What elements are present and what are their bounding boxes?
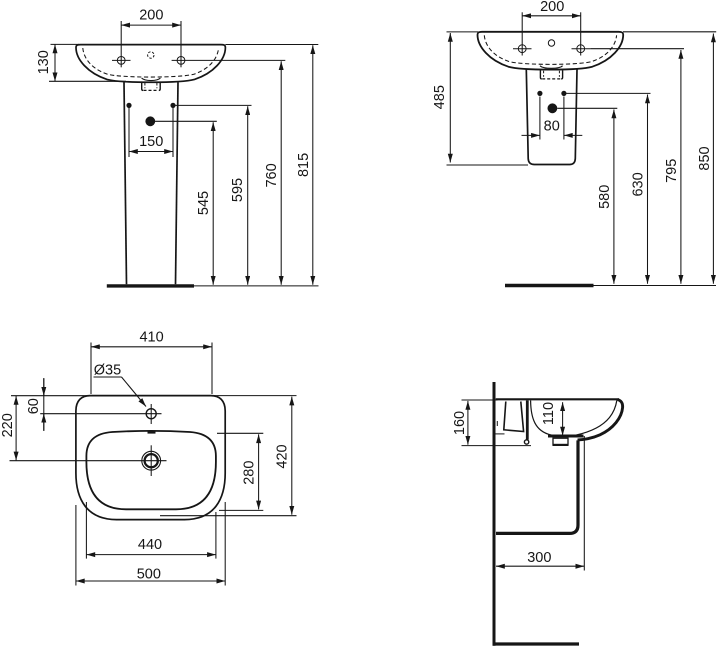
svg-text:815: 815	[296, 153, 312, 177]
svg-text:200: 200	[540, 0, 564, 15]
svg-text:200: 200	[139, 7, 163, 23]
svg-text:420: 420	[275, 444, 291, 468]
svg-text:580: 580	[597, 185, 613, 209]
svg-text:630: 630	[630, 172, 646, 196]
svg-text:410: 410	[139, 330, 163, 346]
svg-text:80: 80	[544, 118, 560, 134]
svg-text:440: 440	[138, 537, 162, 553]
svg-text:Ø35: Ø35	[94, 362, 121, 378]
svg-text:130: 130	[36, 50, 52, 74]
svg-text:545: 545	[196, 191, 212, 215]
svg-text:60: 60	[26, 398, 42, 414]
svg-text:300: 300	[527, 550, 551, 566]
svg-text:110: 110	[541, 402, 557, 425]
svg-text:760: 760	[264, 163, 280, 187]
svg-text:280: 280	[242, 461, 258, 485]
svg-text:485: 485	[432, 85, 448, 109]
svg-text:595: 595	[230, 178, 246, 202]
svg-text:850: 850	[697, 146, 713, 170]
svg-text:150: 150	[139, 134, 163, 150]
svg-text:160: 160	[452, 411, 468, 435]
svg-text:795: 795	[664, 159, 680, 183]
svg-text:500: 500	[137, 566, 161, 582]
svg-text:220: 220	[0, 413, 16, 437]
